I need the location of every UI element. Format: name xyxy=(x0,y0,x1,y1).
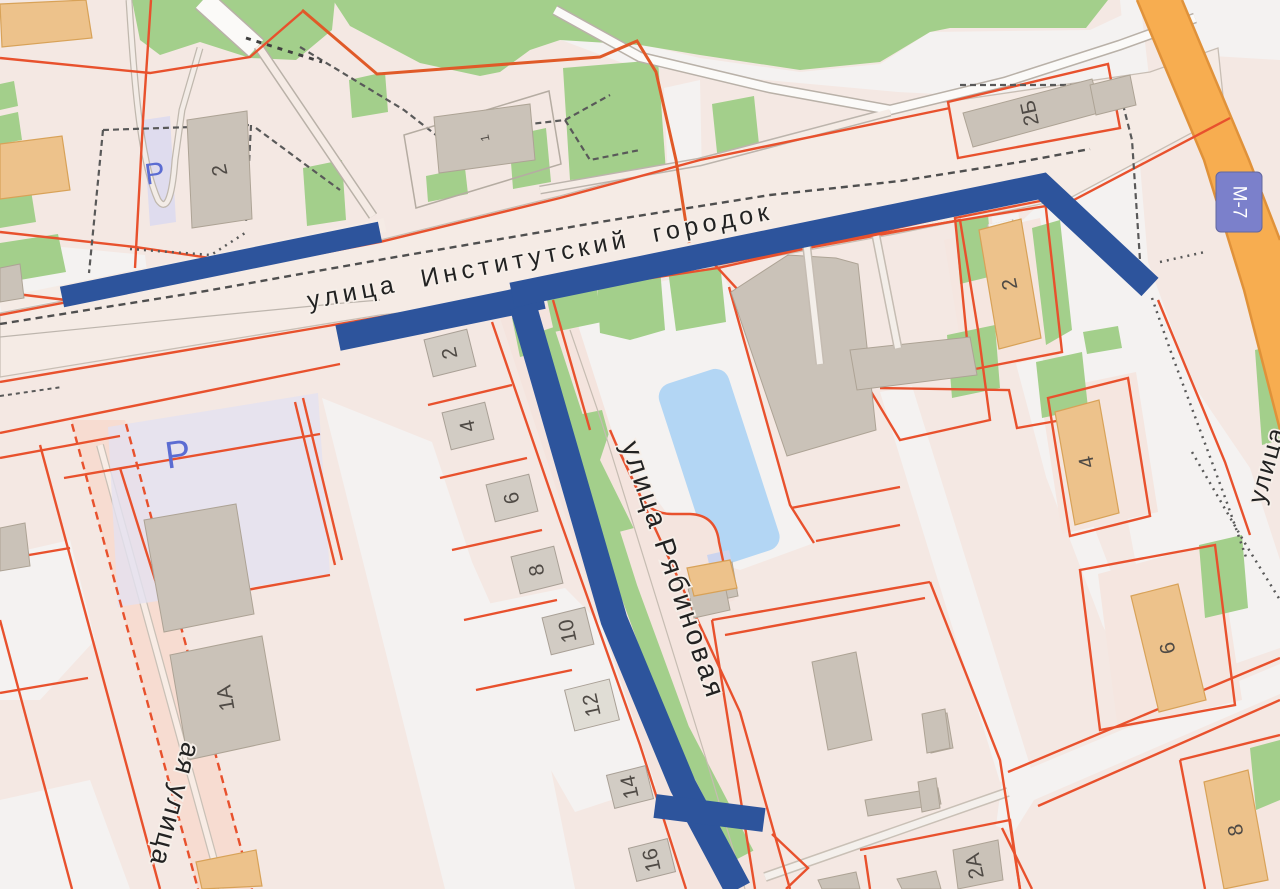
svg-text:10: 10 xyxy=(554,617,581,645)
svg-text:12: 12 xyxy=(578,691,605,719)
svg-text:1А: 1А xyxy=(212,683,239,712)
svg-text:М-7: М-7 xyxy=(1229,186,1250,219)
svg-text:16: 16 xyxy=(638,846,665,874)
